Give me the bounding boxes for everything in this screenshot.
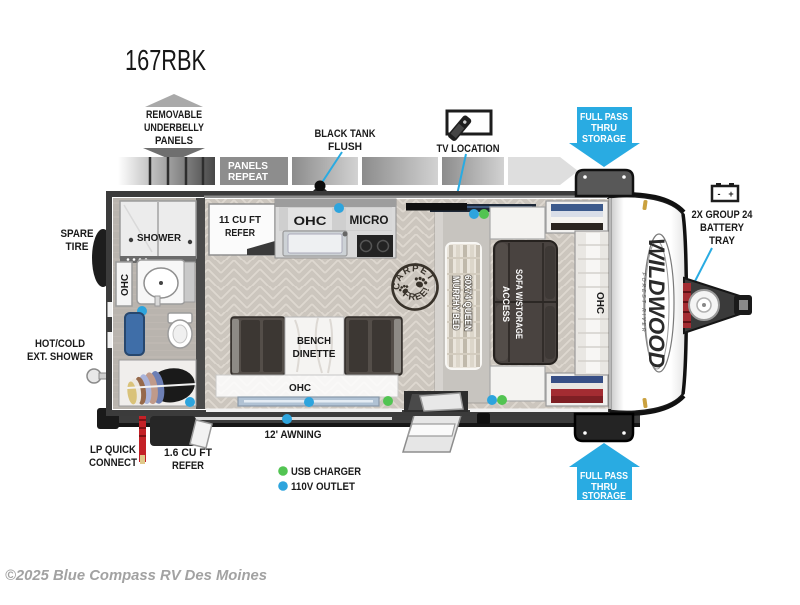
svg-text:OHC: OHC xyxy=(294,216,327,228)
svg-text:PANELS: PANELS xyxy=(155,135,193,147)
svg-text:TV LOCATION: TV LOCATION xyxy=(437,143,500,155)
svg-text:FLUSH: FLUSH xyxy=(328,141,362,153)
svg-text:BENCH: BENCH xyxy=(297,335,331,347)
svg-text:REPEAT: REPEAT xyxy=(228,171,269,183)
svg-text:REFER: REFER xyxy=(172,460,204,472)
svg-text:MURPHY BED: MURPHY BED xyxy=(450,276,461,330)
svg-text:LP QUICK: LP QUICK xyxy=(90,444,136,456)
svg-text:BLACK TANK: BLACK TANK xyxy=(315,128,376,140)
svg-text:-: - xyxy=(718,189,721,199)
svg-text:MICRO: MICRO xyxy=(350,215,389,227)
svg-text:11 CU FT: 11 CU FT xyxy=(219,214,262,226)
svg-text:THRU: THRU xyxy=(591,123,617,134)
svg-text:CONNECT: CONNECT xyxy=(89,457,137,469)
svg-text:1.6 CU FT: 1.6 CU FT xyxy=(164,447,212,459)
svg-text:WILDWOOD: WILDWOOD xyxy=(644,238,669,368)
svg-text:60X74 QUEEN: 60X74 QUEEN xyxy=(462,275,473,331)
svg-text:UNDERBELLY: UNDERBELLY xyxy=(144,122,205,134)
svg-text:STORAGE: STORAGE xyxy=(582,134,626,145)
svg-text:HOT/COLD: HOT/COLD xyxy=(35,338,85,350)
svg-text:+: + xyxy=(728,189,733,199)
svg-text:EXT. SHOWER: EXT. SHOWER xyxy=(27,351,93,363)
svg-text:TIRE: TIRE xyxy=(66,241,89,253)
svg-text:BATTERY: BATTERY xyxy=(700,222,745,234)
svg-text:REFER: REFER xyxy=(225,227,255,239)
svg-text:ACCESS: ACCESS xyxy=(500,286,511,322)
svg-text:SPARE: SPARE xyxy=(61,228,94,240)
svg-text:FOREST RIVER: FOREST RIVER xyxy=(640,273,646,334)
svg-text:©2025 Blue Compass RV Des Moin: ©2025 Blue Compass RV Des Moines xyxy=(5,567,267,584)
svg-text:SHOWER: SHOWER xyxy=(137,232,181,244)
svg-text:12' AWNING: 12' AWNING xyxy=(265,429,322,441)
svg-text:FULL PASS: FULL PASS xyxy=(580,471,628,482)
svg-text:OHC: OHC xyxy=(594,292,605,314)
svg-text:TRAY: TRAY xyxy=(709,235,736,247)
svg-text:OHC: OHC xyxy=(289,382,311,394)
svg-text:STORAGE: STORAGE xyxy=(582,491,626,502)
svg-text:SOFA W/STORAGE: SOFA W/STORAGE xyxy=(513,269,524,339)
svg-text:OHC: OHC xyxy=(120,274,131,296)
svg-text:167RBK: 167RBK xyxy=(125,45,206,77)
svg-text:110V OUTLET: 110V OUTLET xyxy=(291,481,355,493)
svg-text:2X GROUP 24: 2X GROUP 24 xyxy=(692,209,754,221)
svg-text:FULL PASS: FULL PASS xyxy=(580,112,628,123)
svg-text:USB CHARGER: USB CHARGER xyxy=(291,466,361,478)
svg-text:DINETTE: DINETTE xyxy=(293,348,336,360)
svg-text:REMOVABLE: REMOVABLE xyxy=(146,109,202,121)
